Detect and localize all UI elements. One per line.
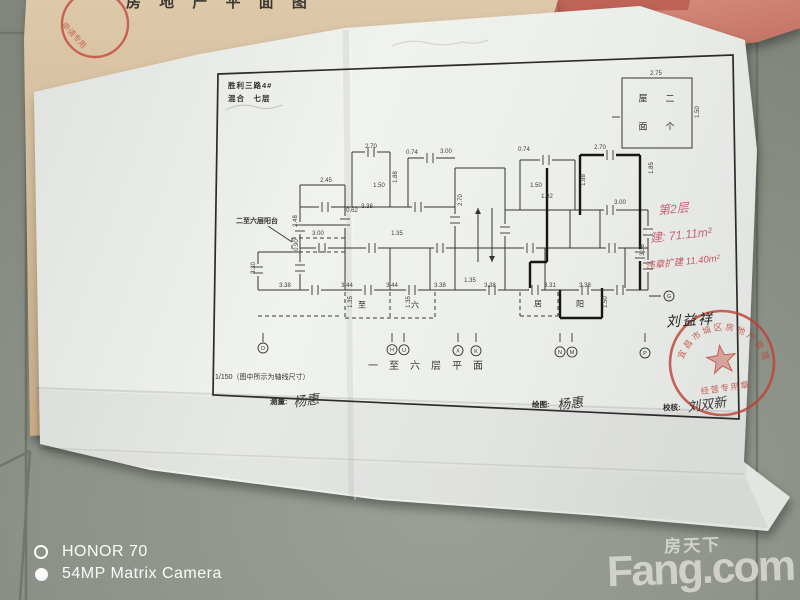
dim-label: 2.45 — [320, 178, 332, 184]
red-note-line1: 第2层 — [657, 198, 689, 218]
dim-label: 1.35 — [391, 231, 403, 237]
roof-box-label: 个 — [665, 120, 674, 133]
dim-label: 1.02 — [541, 194, 553, 200]
dim-label: 3.00 — [440, 149, 452, 155]
fang-watermark: 房天下 Fang.com — [606, 542, 795, 597]
cut-off-form-text: 房 地 产 平 面 图 — [126, 0, 316, 14]
room-label: 阳 — [576, 299, 584, 310]
pencil-scribble — [226, 105, 282, 110]
dim-label: 1.88 — [393, 171, 399, 183]
svg-text:M: M — [570, 350, 575, 356]
dim-label: 1.88 — [581, 174, 587, 186]
dim-label: 1.35 — [348, 296, 354, 308]
dim-label: 3.36 — [640, 244, 646, 256]
camera-watermark: HONOR 70 54MP Matrix Camera — [34, 541, 222, 585]
dim-label: 3.31 — [544, 283, 556, 289]
dim-label: 0.74 — [518, 147, 530, 153]
draft-signature: 杨惠 — [556, 391, 584, 413]
dim-label: 3.44 — [386, 283, 398, 289]
room-label: 至 — [358, 300, 366, 311]
dim-label: 0.74 — [406, 150, 418, 156]
svg-text:D: D — [261, 346, 265, 352]
dim-label: 3.38 — [434, 283, 446, 289]
stamp-star-icon — [705, 343, 737, 374]
roof-plan-box — [622, 78, 692, 148]
room-label: 居 — [534, 299, 542, 310]
svg-text:P: P — [643, 351, 647, 357]
roof-box-label: 二 — [665, 92, 674, 105]
measure-signature: 杨惠 — [292, 388, 320, 410]
svg-text:K: K — [474, 349, 478, 355]
dim-label: 3.44 — [341, 283, 353, 289]
dot-icon — [35, 568, 48, 581]
pencil-scribble — [392, 40, 488, 46]
dim-label: 2.70 — [365, 144, 377, 150]
dim-label: 0.62 — [346, 208, 358, 214]
dim-label: 2.70 — [458, 194, 464, 206]
drawing-ink-layer: DHUXKNMPG宜昌市城区房地产管理所经营专用章 — [0, 0, 800, 600]
plan-address-title: 胜利三路4# — [228, 80, 272, 91]
dim-label: 2.70 — [594, 145, 606, 151]
plan-structure-floors: 混合 七层 — [228, 93, 271, 104]
roof-box-label: 面 — [638, 120, 647, 133]
camera-model-text: HONOR 70 — [62, 543, 148, 561]
dim-label: 3.00 — [312, 231, 324, 237]
dim-label: 3.38 — [279, 283, 291, 289]
dim-label: 1.50 — [530, 183, 542, 189]
svg-text:N: N — [558, 350, 562, 356]
dim-label: 3.38 — [484, 283, 496, 289]
photo-of-floor-plan-document: DHUXKNMPG宜昌市城区房地产管理所经营专用章 2.700.743.000.… — [0, 0, 800, 600]
dim-label: 0.90 — [294, 239, 300, 251]
dim-label: 1.50 — [695, 106, 701, 118]
dim-label: 3.30 — [251, 262, 257, 274]
svg-text:H: H — [390, 348, 394, 354]
draft-label: 绘图: — [532, 399, 550, 410]
svg-text:U: U — [402, 348, 406, 354]
dim-label: 1.50 — [603, 296, 609, 308]
dim-label: 1.85 — [649, 162, 655, 174]
dim-label: 3.00 — [614, 200, 626, 206]
svg-text:X: X — [456, 349, 460, 355]
svg-text:G: G — [667, 294, 671, 300]
dim-label: 3.38 — [361, 204, 373, 210]
dim-label: 2.75 — [650, 71, 662, 77]
owner-name-handwritten: 刘益祥 — [665, 308, 714, 331]
plan-caption: 一至六层平面 — [368, 357, 494, 372]
camera-spec-text: 54MP Matrix Camera — [62, 565, 222, 583]
scale-note: 1/150（图中所示为轴线尺寸） — [215, 372, 310, 382]
dim-label: 2.48 — [293, 215, 299, 227]
roof-box-label: 屋 — [638, 92, 647, 105]
measure-label: 测量: — [270, 396, 288, 407]
balcony-note: 二至六层阳台 — [236, 216, 278, 226]
dim-label: 1.50 — [373, 183, 385, 189]
check-label: 校核: — [663, 402, 681, 413]
dim-label: 1.35 — [464, 278, 476, 284]
dim-label: 3.38 — [579, 283, 591, 289]
fang-cn-text: 房天下 — [664, 530, 722, 557]
room-label: 六 — [411, 300, 419, 311]
ring-icon — [34, 545, 48, 559]
